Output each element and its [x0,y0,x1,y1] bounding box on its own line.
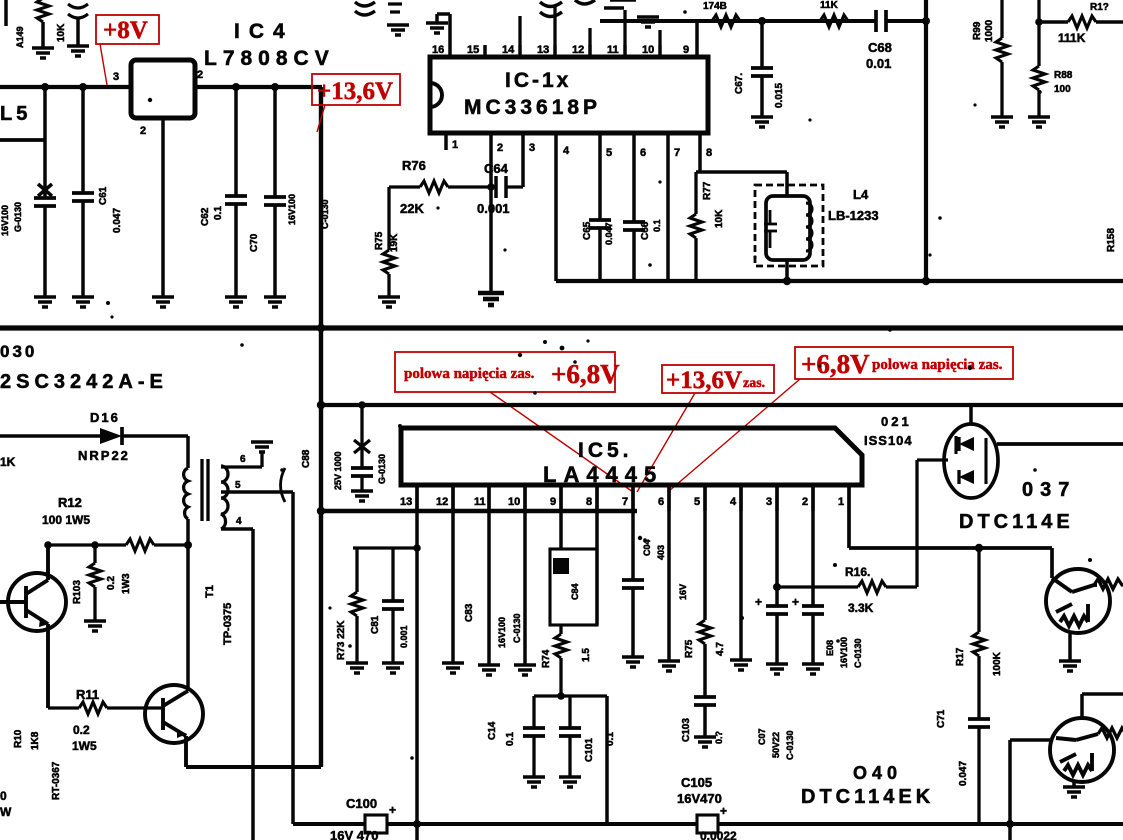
svg-text:+: + [792,595,799,609]
svg-text:3: 3 [113,71,119,83]
svg-text:0.1: 0.1 [652,219,662,232]
svg-text:R74: R74 [541,649,552,668]
svg-text:R76: R76 [402,158,426,173]
svg-text:R10: R10 [13,729,24,748]
svg-text:C62: C62 [200,207,211,226]
svg-text:0.047: 0.047 [958,761,969,786]
svg-text:R103: R103 [72,580,83,604]
svg-text:6: 6 [640,147,646,159]
svg-text:0.047: 0.047 [604,222,614,245]
svg-text:10K: 10K [714,209,725,228]
svg-text:R12: R12 [58,495,82,510]
svg-text:25V 1000: 25V 1000 [333,451,343,490]
svg-text:3: 3 [766,496,772,508]
svg-text:2: 2 [197,69,203,81]
svg-text:22K: 22K [400,201,424,216]
svg-text:W: W [0,805,12,819]
svg-text:1K: 1K [0,455,16,469]
svg-text:13: 13 [537,44,549,56]
svg-text:A149: A149 [15,26,25,48]
svg-text:10: 10 [642,44,654,56]
svg-text:0.047: 0.047 [112,208,123,233]
svg-text:16V100: 16V100 [0,205,10,236]
svg-text:8: 8 [586,496,592,508]
svg-text:15: 15 [467,44,479,56]
svg-text:16V100: 16V100 [497,617,507,648]
svg-text:C64: C64 [484,161,509,176]
svg-text:4: 4 [730,496,737,508]
svg-text:C-0130: C-0130 [785,730,795,760]
svg-text:G-0130: G-0130 [13,202,23,232]
svg-text:C-0130: C-0130 [853,638,863,668]
svg-text:10: 10 [508,496,520,508]
svg-text:0: 0 [0,789,7,803]
svg-text:11: 11 [607,44,619,56]
svg-text:4: 4 [563,145,570,157]
svg-text:0.2: 0.2 [106,576,117,590]
svg-text:R77: R77 [702,181,713,200]
svg-text:0.001: 0.001 [477,201,510,216]
svg-text:6: 6 [240,454,246,465]
svg-text:C100: C100 [346,796,377,811]
svg-text:C04: C04 [642,539,652,556]
svg-text:1W5: 1W5 [72,739,97,753]
svg-text:C14: C14 [487,721,498,740]
svg-text:+6,8V: +6,8V [801,349,870,379]
svg-text:+: + [755,595,762,609]
svg-text:0.015: 0.015 [774,83,785,108]
svg-text:100 1W5: 100 1W5 [42,513,90,527]
svg-text:C65: C65 [582,221,593,240]
svg-text:R73 22K: R73 22K [336,620,347,660]
svg-text:14: 14 [502,44,515,56]
svg-text:403: 403 [656,545,666,560]
svg-text:T1: T1 [204,585,216,598]
svg-text:C83: C83 [464,603,475,622]
svg-text:C71: C71 [936,709,947,728]
svg-text:0.1: 0.1 [505,732,516,746]
svg-text:D16: D16 [90,410,120,425]
svg-text:R99: R99 [972,21,983,40]
svg-text:8: 8 [706,147,712,159]
svg-text:C84: C84 [570,583,580,600]
svg-text:L4: L4 [853,187,869,202]
svg-text:C88: C88 [301,449,312,468]
svg-text:+13,6V: +13,6V [666,367,742,394]
svg-text:0.0022: 0.0022 [700,829,737,840]
svg-text:5: 5 [606,147,612,159]
svg-text:1: 1 [838,496,844,508]
svg-text:12: 12 [436,496,448,508]
svg-text:polowa napięcia zas.: polowa napięcia zas. [872,357,1003,373]
svg-text:2: 2 [802,496,808,508]
svg-text:NRP22: NRP22 [78,448,130,463]
svg-text:16V 470: 16V 470 [330,828,378,840]
svg-text:16V100: 16V100 [287,194,297,225]
svg-text:IC5.: IC5. [578,439,633,462]
svg-text:10K: 10K [56,23,67,42]
svg-text:C101: C101 [584,738,595,762]
svg-text:11K: 11K [820,0,839,11]
svg-text:7: 7 [674,147,680,159]
svg-text:R75: R75 [684,639,695,658]
svg-text:E08: E08 [825,640,835,656]
svg-text:5: 5 [235,480,241,491]
svg-text:0.001: 0.001 [399,625,409,648]
svg-text:+: + [720,804,727,818]
svg-text:C68: C68 [868,40,892,55]
svg-text:R1?: R1? [1090,2,1109,13]
svg-text:C67.: C67. [734,73,745,94]
svg-text:1000: 1000 [984,19,995,42]
svg-text:O40: O40 [853,763,902,783]
svg-text:1K8: 1K8 [30,731,41,750]
svg-text:0.01: 0.01 [866,56,891,71]
svg-text:R158: R158 [1106,228,1117,252]
svg-text:4.7: 4.7 [715,642,726,656]
svg-text:3.3K: 3.3K [848,601,874,615]
svg-text:030: 030 [0,342,37,361]
svg-text:TP-0375: TP-0375 [222,603,234,645]
svg-text:19K: 19K [389,233,400,252]
svg-text:0.2: 0.2 [73,723,90,737]
svg-text:C61: C61 [98,186,109,205]
svg-text:zas.: zas. [743,376,765,391]
svg-text:12: 12 [572,44,584,56]
svg-text:C105: C105 [681,775,712,790]
svg-text:MC33618P: MC33618P [464,96,601,119]
svg-text:13: 13 [400,496,412,508]
svg-text:RT-0367: RT-0367 [51,761,62,800]
svg-text:+: + [389,803,396,817]
svg-text:IC-1x: IC-1x [505,69,571,92]
svg-text:ISS104: ISS104 [864,433,913,448]
svg-text:+6,8V: +6,8V [551,359,620,389]
svg-text:50V22: 50V22 [771,732,781,758]
svg-text:C07: C07 [757,728,767,745]
svg-text:+8V: +8V [103,17,148,44]
svg-text:16V470: 16V470 [677,791,722,806]
svg-text:021: 021 [881,414,912,429]
svg-text:G-0130: G-0130 [377,454,387,484]
svg-text:R11: R11 [76,687,99,702]
svg-text:100K: 100K [992,651,1003,676]
svg-text:C103: C103 [681,718,692,742]
svg-text:111K: 111K [1058,31,1086,45]
svg-text:6: 6 [658,496,664,508]
svg-text:9: 9 [683,44,689,56]
svg-text:0.?: 0.? [714,731,724,744]
svg-text:IC4: IC4 [234,20,294,43]
svg-text:1W3: 1W3 [121,573,132,594]
svg-text:4: 4 [236,516,242,527]
svg-text:C-0130: C-0130 [320,199,330,229]
svg-text:7: 7 [622,496,628,508]
svg-text:9: 9 [550,496,556,508]
svg-text:C-0130: C-0130 [512,613,522,643]
svg-text:DTC114E: DTC114E [959,511,1074,533]
svg-text:DTC114EK: DTC114EK [801,786,934,808]
svg-text:174B: 174B [703,1,727,12]
svg-text:LB-1233: LB-1233 [828,208,879,223]
svg-text:1: 1 [452,139,458,151]
svg-text:C70: C70 [249,233,260,252]
svg-text:R16.: R16. [845,565,870,579]
svg-text:2SC3242A-E: 2SC3242A-E [0,371,168,393]
svg-text:+13,6V: +13,6V [317,78,393,105]
svg-text:polowa napięcia zas.: polowa napięcia zas. [404,366,535,382]
svg-text:2: 2 [140,125,146,137]
svg-text:11: 11 [474,496,486,508]
svg-text:L7808CV: L7808CV [204,47,335,70]
svg-text:037: 037 [1022,479,1076,501]
svg-text:3: 3 [529,142,535,154]
svg-text:C81: C81 [370,615,381,634]
svg-text:16V100: 16V100 [839,637,849,668]
svg-text:2: 2 [497,142,503,154]
svg-text:5: 5 [694,496,700,508]
svg-text:LA4445: LA4445 [543,462,663,487]
svg-text:100: 100 [1054,84,1071,95]
svg-text:16: 16 [432,44,444,56]
svg-text:0.1: 0.1 [213,206,224,220]
svg-text:R75: R75 [374,231,385,250]
svg-text:16V: 16V [678,584,688,600]
svg-text:1.5: 1.5 [581,648,592,662]
svg-text:L5: L5 [0,103,31,125]
svg-text:R17: R17 [955,647,966,666]
svg-text:R88: R88 [1054,70,1073,81]
